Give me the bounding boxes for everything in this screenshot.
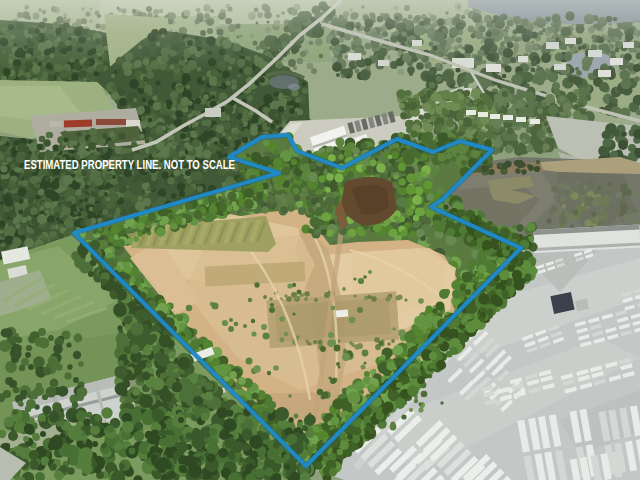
svg-text:ESTIMATED PROPERTY LINE. NOT T: ESTIMATED PROPERTY LINE. NOT TO SCALE	[24, 157, 235, 172]
